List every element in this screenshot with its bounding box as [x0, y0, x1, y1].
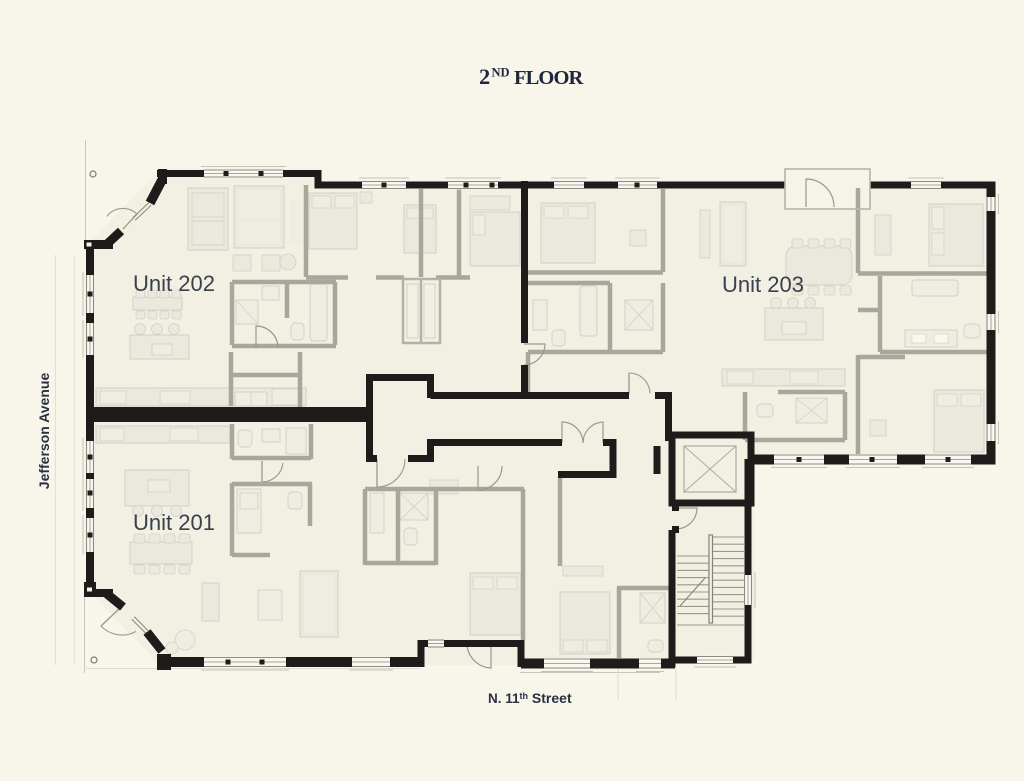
svg-text:Jefferson Avenue: Jefferson Avenue [36, 373, 52, 490]
svg-text:Unit 202: Unit 202 [133, 271, 215, 296]
svg-text:FLOOR: FLOOR [514, 67, 583, 89]
svg-text:Unit 201: Unit 201 [133, 510, 215, 535]
svg-text:Unit 203: Unit 203 [722, 272, 804, 297]
svg-text:N. 11th Street: N. 11th Street [488, 690, 572, 706]
svg-text:ND: ND [492, 66, 510, 80]
svg-text:2: 2 [479, 64, 490, 89]
